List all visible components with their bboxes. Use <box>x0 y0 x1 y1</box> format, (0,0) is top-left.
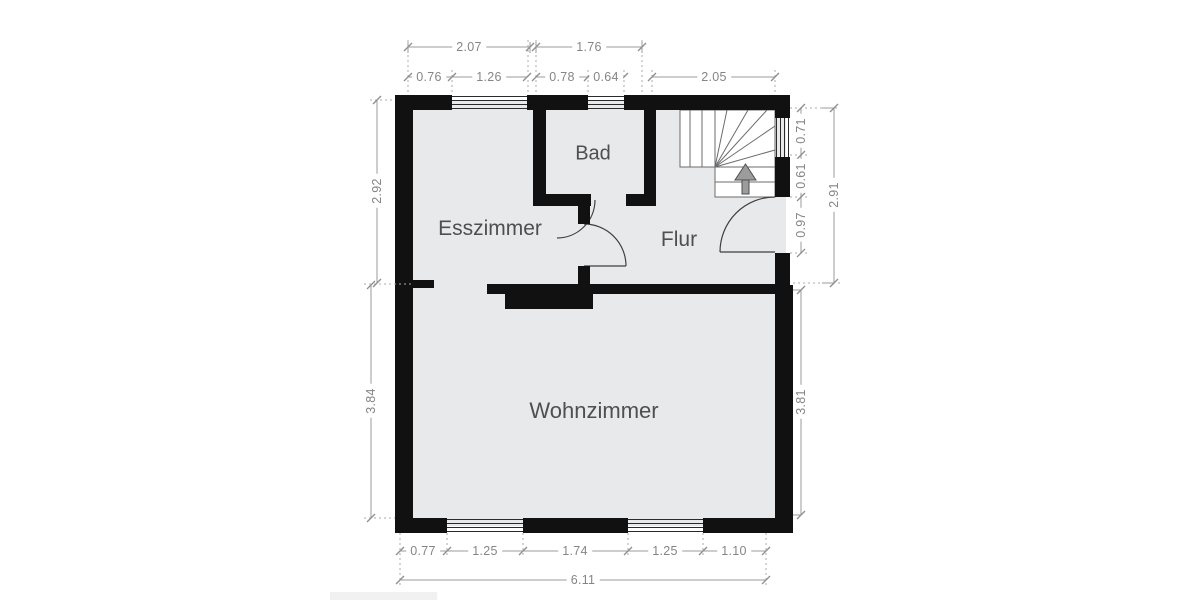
dim-left-lower: 3.84 <box>364 384 378 418</box>
dim-right-overall: 2.91 <box>827 178 841 212</box>
dim-top-overall-right: 1.76 <box>572 40 606 54</box>
dim-top-detail-4: 0.64 <box>589 70 623 84</box>
dim-right-detail-2: 0.61 <box>794 159 808 193</box>
dim-top-overall-left: 2.07 <box>452 40 486 54</box>
floor-plan-canvas: Bad Esszimmer Flur Wohnzimmer 2.07 1.76 … <box>0 0 1200 600</box>
dim-bottom-detail-2: 1.25 <box>468 544 502 558</box>
dim-bottom-overall: 6.11 <box>567 573 600 587</box>
dim-left-upper: 2.92 <box>370 174 384 208</box>
room-label-bad: Bad <box>575 143 611 166</box>
room-label-flur: Flur <box>661 228 697 252</box>
dim-right-detail-1: 0.71 <box>794 114 808 148</box>
dim-bottom-detail-5: 1.10 <box>717 544 751 558</box>
dim-top-detail-1: 0.76 <box>412 70 446 84</box>
floor-plan-drawing <box>0 0 1200 600</box>
bottom-left-artifact <box>330 592 437 600</box>
dim-right-detail-3: 0.97 <box>794 208 808 242</box>
dim-top-detail-3: 0.78 <box>545 70 579 84</box>
room-label-esszimmer: Esszimmer <box>438 217 542 241</box>
dim-bottom-detail-4: 1.25 <box>648 544 682 558</box>
dim-top-detail-5: 2.05 <box>697 70 731 84</box>
dim-bottom-detail-3: 1.74 <box>558 544 592 558</box>
dim-bottom-detail-1: 0.77 <box>406 544 440 558</box>
dim-right-lower: 3.81 <box>794 385 808 419</box>
room-label-wohnzimmer: Wohnzimmer <box>529 398 658 424</box>
dim-top-detail-2: 1.26 <box>472 70 506 84</box>
